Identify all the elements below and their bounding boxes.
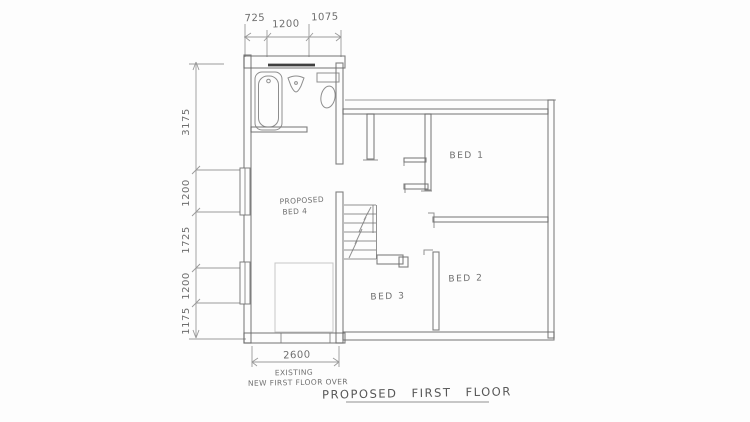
main-bottom-wall xyxy=(343,332,554,340)
top-dim-label-725: 725 xyxy=(244,13,265,25)
floor-plan-drawing: 725 1200 1075 3175 1200 1725 1200 1175 xyxy=(0,0,750,422)
left-dim-label-1175: 1175 xyxy=(181,307,192,334)
sink-drain-icon xyxy=(295,82,298,85)
landing-cupboard-wall xyxy=(367,114,374,159)
bottom-dimension: 2600 EXISTING NEW FIRST FLOOR OVER xyxy=(248,346,348,388)
bed4-label-line2: BED 4 xyxy=(282,206,307,216)
left-dim-label-1200b: 1200 xyxy=(181,272,192,299)
left-dim-label-3175: 3175 xyxy=(181,108,192,135)
toilet-bowl-icon xyxy=(319,85,337,109)
bed2-door-jamb xyxy=(424,250,433,255)
top-dim-label-1200: 1200 xyxy=(272,19,300,31)
bathtub-tap-icon xyxy=(267,79,271,83)
bed1-left-wall xyxy=(425,114,431,190)
bed1-bed2-divider-wall xyxy=(433,217,548,222)
new-first-floor-note: NEW FIRST FLOOR OVER xyxy=(248,377,348,388)
left-dim-extension-dashes xyxy=(189,64,246,339)
bathtub-inner-icon xyxy=(259,76,279,127)
left-dimension-chain: 3175 1200 1725 1200 1175 xyxy=(181,62,246,339)
staircase xyxy=(344,205,408,267)
main-right-wall xyxy=(548,100,554,338)
top-dim-label-1075: 1075 xyxy=(311,12,339,24)
left-dim-label-1725: 1725 xyxy=(181,226,192,253)
main-house-walls xyxy=(343,100,556,340)
new-floor-over-outline xyxy=(275,263,333,332)
bathroom-fixtures xyxy=(255,72,339,130)
drawing-title: PROPOSED FIRST FLOOR xyxy=(322,384,512,401)
bottom-wall-opening-ticks xyxy=(281,333,330,343)
cupboard-shelf-wall-lower xyxy=(404,184,428,189)
left-dim-label-1200a: 1200 xyxy=(181,179,192,206)
bottom-dim-label-2600: 2600 xyxy=(283,350,311,362)
cupboard-shelf-wall-upper xyxy=(404,158,426,162)
extension-right-wall-lower xyxy=(336,192,343,343)
bed3-label: BED 3 xyxy=(370,291,405,302)
stair-treads xyxy=(344,205,376,259)
drawing-title-block: PROPOSED FIRST FLOOR xyxy=(322,384,512,402)
bed2-bed3-divider-wall xyxy=(433,252,439,330)
top-dimension-chain: 725 1200 1075 xyxy=(244,12,341,57)
bed1-label: BED 1 xyxy=(449,151,484,162)
bed4-label-line1: PROPOSED xyxy=(279,195,324,206)
room-labels: BED 1 BED 2 BED 3 PROPOSED BED 4 xyxy=(279,151,484,303)
existing-note: EXISTING xyxy=(275,368,313,378)
scanned-floor-plan-page: 725 1200 1075 3175 1200 1725 1200 1175 xyxy=(0,0,750,422)
bed2-label: BED 2 xyxy=(448,273,483,284)
main-top-interior-wall xyxy=(343,109,548,114)
